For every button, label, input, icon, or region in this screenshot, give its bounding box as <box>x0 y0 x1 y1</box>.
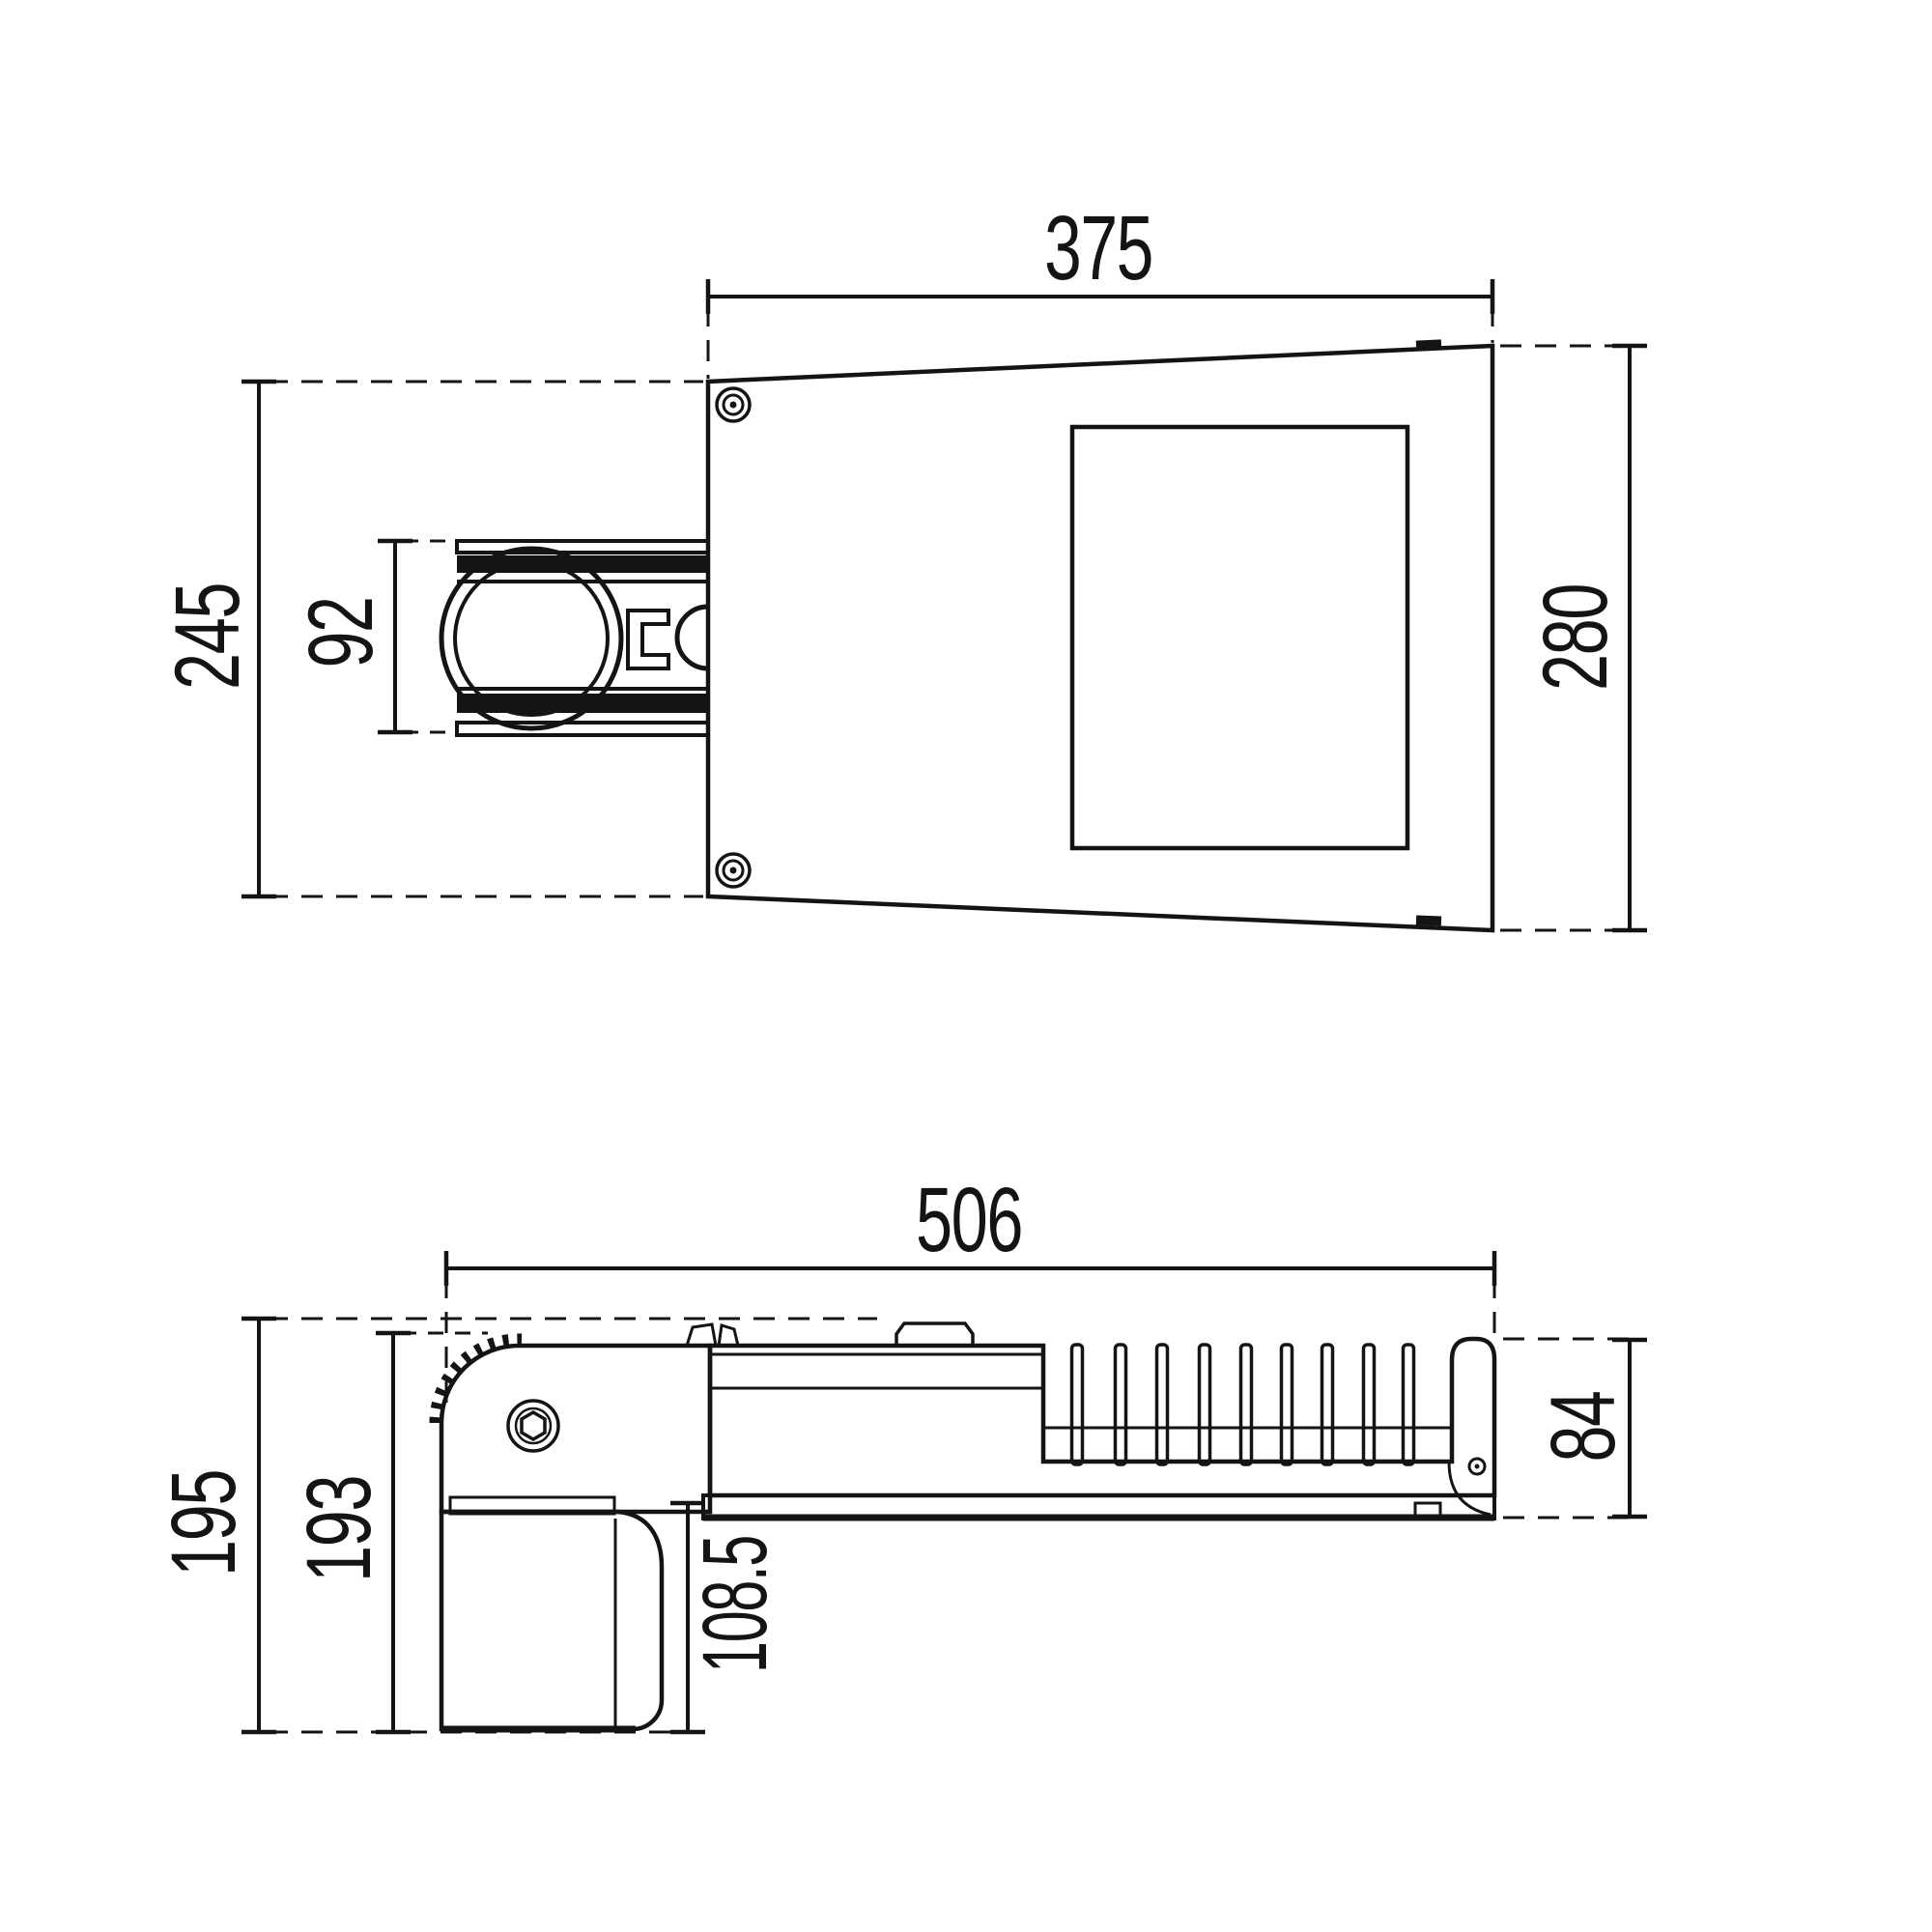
screw-top-left <box>717 388 750 421</box>
fin <box>1116 1345 1126 1464</box>
luminaire-body-top <box>708 339 1492 930</box>
luminaire-dimension-drawing: 375 245 92 280 <box>0 0 1932 1932</box>
clamp-block <box>441 1512 662 1729</box>
fin <box>1157 1345 1168 1464</box>
drawing-page: 375 245 92 280 <box>0 0 1932 1932</box>
dim-375-label: 375 <box>1044 197 1152 299</box>
pole-clamp-top <box>441 541 708 735</box>
fin <box>1282 1345 1293 1464</box>
fin <box>1241 1345 1252 1464</box>
clamp-jaw <box>628 611 668 668</box>
dim-108-5: 108.5 <box>670 1503 786 1732</box>
pivot-bolt <box>508 1401 558 1451</box>
dim-193: 193 <box>288 1333 488 1732</box>
luminaire-body-side <box>687 1323 1494 1519</box>
housing-outline-top <box>708 346 1492 930</box>
fin <box>1200 1345 1210 1464</box>
dim-193-label: 193 <box>288 1476 390 1582</box>
fin <box>1364 1345 1375 1464</box>
dim-506: 506 <box>446 1169 1494 1403</box>
dim-195-label: 195 <box>153 1470 255 1577</box>
fin <box>1404 1345 1414 1464</box>
side-view: 506 195 193 108.5 <box>153 1169 1647 1732</box>
dim-108-5-label: 108.5 <box>684 1536 786 1673</box>
heatsink-fins <box>1072 1345 1414 1464</box>
hinge-screw-tab-1 <box>687 1324 716 1346</box>
pole-tube-inner <box>455 562 608 715</box>
top-view: 375 245 92 280 <box>156 197 1647 930</box>
bracket-rail-bottom <box>457 723 708 735</box>
screw-bottom-left <box>717 854 750 887</box>
dim-280: 280 <box>1500 346 1647 930</box>
dim-84: 84 <box>1503 1339 1647 1518</box>
pivot-arm <box>441 1346 710 1512</box>
dim-245-label: 245 <box>156 583 259 690</box>
dim-280-label: 280 <box>1524 584 1627 691</box>
hinge-screw-tab-2 <box>719 1325 738 1346</box>
dim-92: 92 <box>290 541 452 732</box>
edge-clip-bottom <box>1416 915 1441 925</box>
optic-window <box>1072 427 1407 848</box>
bracket-rail-top <box>457 541 708 553</box>
dim-506-label: 506 <box>916 1169 1022 1271</box>
dim-84-label: 84 <box>1532 1391 1634 1462</box>
dim-92-label: 92 <box>290 598 392 668</box>
fin <box>1072 1345 1083 1464</box>
edge-clip-top <box>1416 339 1441 350</box>
endcap-screw-dot <box>1475 1464 1480 1469</box>
cable-entry-boss <box>677 607 708 668</box>
top-button <box>896 1323 973 1346</box>
fin <box>1322 1345 1333 1464</box>
housing-outline-side <box>710 1339 1494 1495</box>
pole-clamp-side <box>435 1339 710 1729</box>
